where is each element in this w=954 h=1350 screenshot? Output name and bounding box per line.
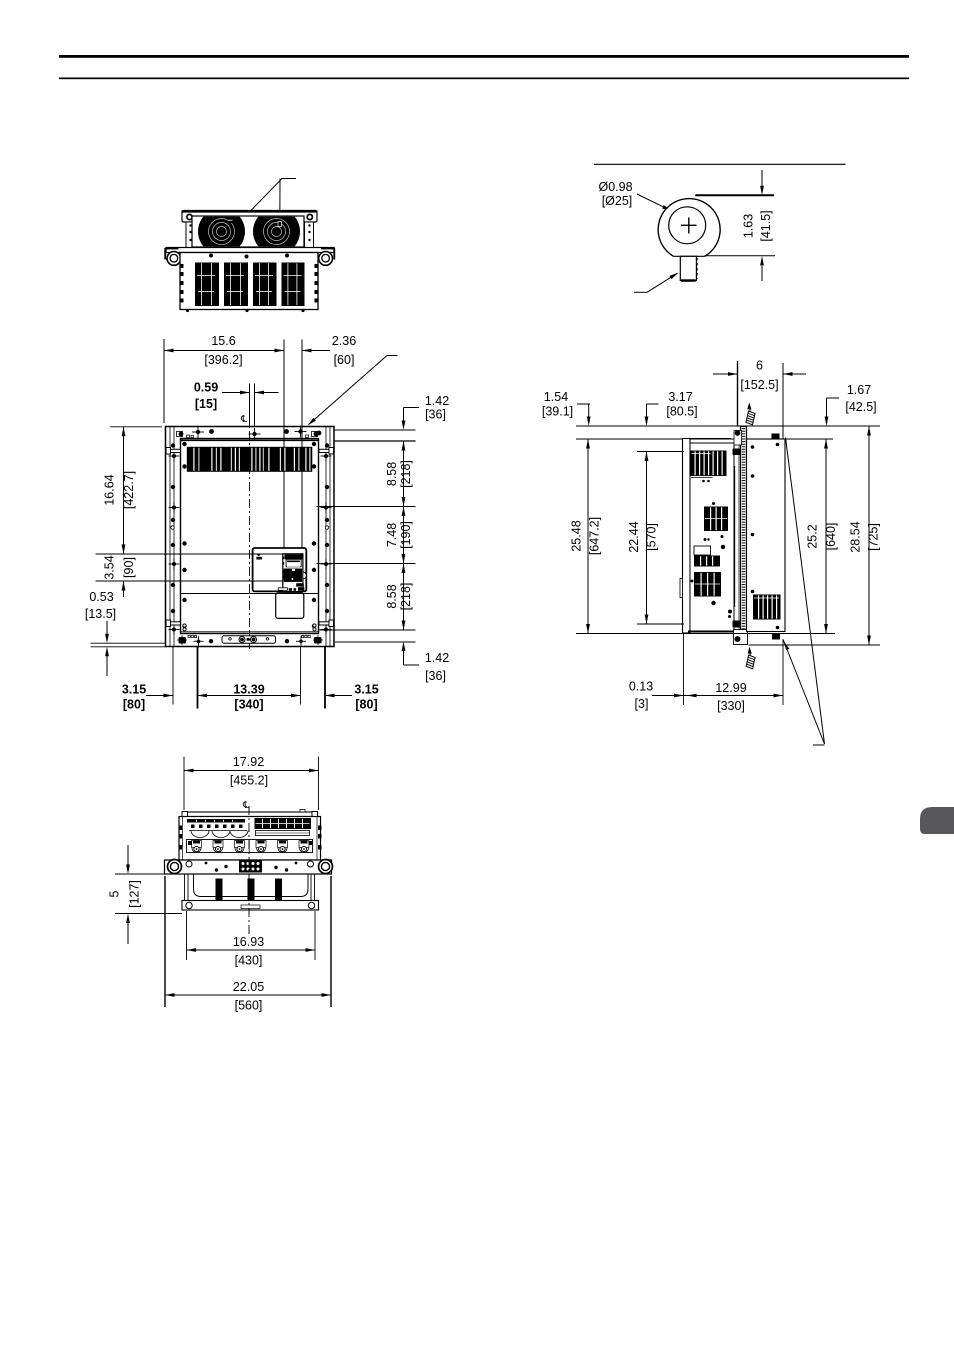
svg-text:[152.5]: [152.5] (740, 378, 778, 392)
svg-text:[80]: [80] (355, 698, 377, 712)
svg-text:0.59: 0.59 (194, 381, 218, 395)
svg-text:[640]: [640] (824, 523, 838, 551)
svg-text:25.2: 25.2 (806, 524, 820, 548)
svg-text:1.67: 1.67 (847, 383, 871, 397)
svg-text:[647.2]: [647.2] (588, 517, 602, 555)
svg-text:2.36: 2.36 (332, 334, 356, 348)
svg-text:1.42: 1.42 (425, 651, 449, 665)
svg-text:7.48: 7.48 (385, 523, 399, 547)
svg-text:[396.2]: [396.2] (204, 353, 242, 367)
svg-text:22.44: 22.44 (627, 521, 641, 552)
svg-text:13.39: 13.39 (233, 683, 264, 697)
svg-text:1.63: 1.63 (742, 214, 756, 238)
svg-text:5: 5 (107, 890, 121, 897)
svg-text:[455.2]: [455.2] (230, 774, 268, 788)
svg-text:12.99: 12.99 (715, 681, 746, 695)
svg-text:[190]: [190] (399, 521, 413, 549)
svg-text:[430]: [430] (235, 954, 263, 968)
svg-text:[218]: [218] (399, 460, 413, 488)
svg-text:[330]: [330] (717, 699, 745, 713)
svg-text:17.92: 17.92 (233, 755, 264, 769)
svg-text:Ø0.98: Ø0.98 (598, 180, 632, 194)
svg-text:3.54: 3.54 (103, 555, 117, 579)
svg-text:16.64: 16.64 (103, 474, 117, 505)
svg-text:22.05: 22.05 (233, 980, 264, 994)
svg-text:[13.5]: [13.5] (85, 607, 116, 621)
svg-text:[39.1]: [39.1] (542, 405, 573, 419)
svg-text:[570]: [570] (645, 523, 659, 551)
svg-text:[218]: [218] (399, 583, 413, 611)
svg-text:[127]: [127] (128, 880, 142, 908)
svg-text:[422.7]: [422.7] (122, 471, 136, 509)
svg-text:25.48: 25.48 (570, 520, 584, 551)
svg-text:0.53: 0.53 (89, 590, 113, 604)
svg-text:[36]: [36] (425, 408, 446, 422)
svg-text:[Ø25]: [Ø25] (602, 194, 633, 208)
svg-text:[80.5]: [80.5] (666, 405, 697, 419)
svg-text:0.13: 0.13 (629, 680, 653, 694)
svg-text:8.58: 8.58 (385, 462, 399, 486)
svg-text:1.42: 1.42 (425, 394, 449, 408)
svg-text:3.15: 3.15 (122, 683, 146, 697)
svg-text:[15]: [15] (195, 397, 217, 411)
svg-text:28.54: 28.54 (849, 521, 863, 552)
svg-text:[90]: [90] (122, 557, 136, 578)
svg-text:8.58: 8.58 (385, 584, 399, 608)
svg-text:16.93: 16.93 (233, 935, 264, 949)
svg-text:3.17: 3.17 (668, 390, 692, 404)
svg-text:[36]: [36] (425, 669, 446, 683)
svg-text:[340]: [340] (234, 698, 263, 712)
svg-text:[80]: [80] (123, 698, 145, 712)
svg-text:[560]: [560] (235, 999, 263, 1013)
svg-text:[42.5]: [42.5] (845, 400, 876, 414)
svg-text:[3]: [3] (635, 697, 649, 711)
svg-text:1.54: 1.54 (544, 390, 568, 404)
svg-text:[41.5]: [41.5] (759, 210, 773, 241)
svg-text:3.15: 3.15 (354, 683, 378, 697)
svg-text:℄: ℄ (240, 414, 248, 425)
svg-text:15.6: 15.6 (211, 334, 235, 348)
svg-text:[725]: [725] (867, 523, 881, 551)
svg-text:6: 6 (756, 359, 763, 373)
svg-text:[60]: [60] (334, 353, 355, 367)
